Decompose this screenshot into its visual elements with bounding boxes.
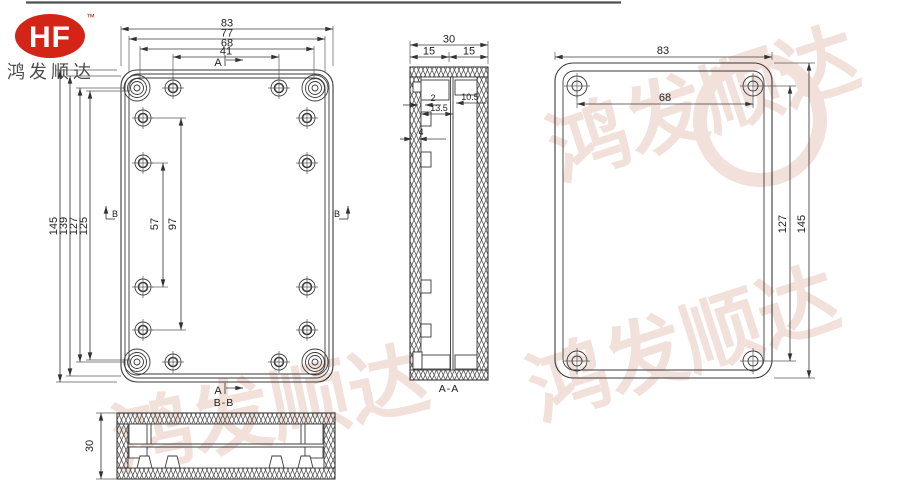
foot-boss: [269, 456, 284, 468]
dim-label: 145: [796, 215, 808, 233]
knurled-wall-left: [410, 77, 421, 370]
mounting-hole: [162, 351, 184, 373]
wall-boss: [421, 152, 431, 167]
corner-boss: [129, 424, 151, 444]
section-marker-b-left: B: [106, 206, 118, 219]
dim-label: 4: [418, 127, 423, 137]
knurled-wall-bottom: [117, 468, 335, 479]
foot-boss: [298, 456, 313, 468]
dim-label: 125: [78, 217, 90, 235]
wall-boss: [421, 280, 431, 293]
corner-boss: [301, 424, 323, 444]
section-letter: B: [112, 209, 118, 219]
dim-depth-halves: 15 15: [410, 46, 488, 63]
dim-label: 15: [423, 46, 435, 58]
mounting-hole: [296, 276, 318, 298]
knurled-wall-right: [477, 77, 488, 370]
dim-label: 83: [657, 45, 669, 57]
foot-boss: [137, 456, 152, 468]
company-name: 鸿发顺达: [7, 62, 95, 82]
dim-label: 41: [220, 46, 232, 58]
brand-logo: HF ™ 鸿发顺达: [7, 12, 95, 82]
mounting-hole: [132, 319, 154, 341]
mounting-hole: [268, 77, 290, 99]
base-section-right: [455, 355, 477, 369]
dim-label: 30: [443, 34, 455, 46]
section-marker-b-right: B: [334, 206, 348, 219]
trademark-symbol: ™: [86, 12, 95, 22]
knurled-wall-right: [324, 424, 335, 468]
section-aa-view: 30 15 15 2 13.5 10.5 4 A-A: [400, 34, 488, 396]
mounting-hole: [296, 319, 318, 341]
dim-rib-width: 4: [400, 127, 446, 139]
mounting-hole: [162, 77, 184, 99]
lid-step: [413, 82, 421, 92]
dim-side-span-inner: 57: [149, 163, 168, 287]
dim-height-side-cols: 125: [78, 91, 130, 360]
dim-label: 57: [149, 218, 161, 230]
wall-boss: [421, 324, 431, 337]
dim-label: 97: [167, 218, 179, 230]
dim-label: 15: [463, 46, 475, 58]
logo-letters: HF: [29, 21, 71, 54]
section-title: A-A: [439, 383, 460, 395]
dim-label: 127: [777, 215, 789, 233]
mounting-hole: [296, 107, 318, 129]
dim-label: 2: [430, 93, 435, 103]
watermark-text: 鸿发顺达: [518, 253, 850, 437]
knurled-wall-top: [117, 413, 335, 424]
section-letter: A: [214, 385, 222, 397]
mounting-hole: [296, 152, 318, 174]
base-step: [413, 352, 422, 369]
section-title: B-B: [214, 397, 235, 409]
dim-label: 13.5: [430, 103, 448, 113]
cad-drawing: 鸿发顺达 鸿发顺达 鸿发顺达 HF ™ 鸿发顺达: [0, 0, 900, 500]
dim-height-corner-holes: 127: [68, 88, 124, 362]
knurled-wall-top: [410, 67, 488, 77]
section-letter: B: [334, 209, 340, 219]
drawing-sheet: 鸿发顺达 鸿发顺达 鸿发顺达 HF ™ 鸿发顺达: [0, 0, 900, 500]
dim-label: 10.5: [461, 92, 479, 102]
knurled-wall-left: [117, 424, 128, 468]
section-letter: A: [214, 57, 222, 69]
dim-label: 30: [84, 440, 96, 452]
mounting-hole: [132, 107, 154, 129]
dim-label: 68: [659, 92, 671, 104]
mounting-hole: [132, 276, 154, 298]
foot-boss: [165, 456, 180, 468]
mounting-hole: [132, 152, 154, 174]
base-section-left: [422, 355, 450, 369]
knurled-wall-bottom: [410, 370, 488, 380]
